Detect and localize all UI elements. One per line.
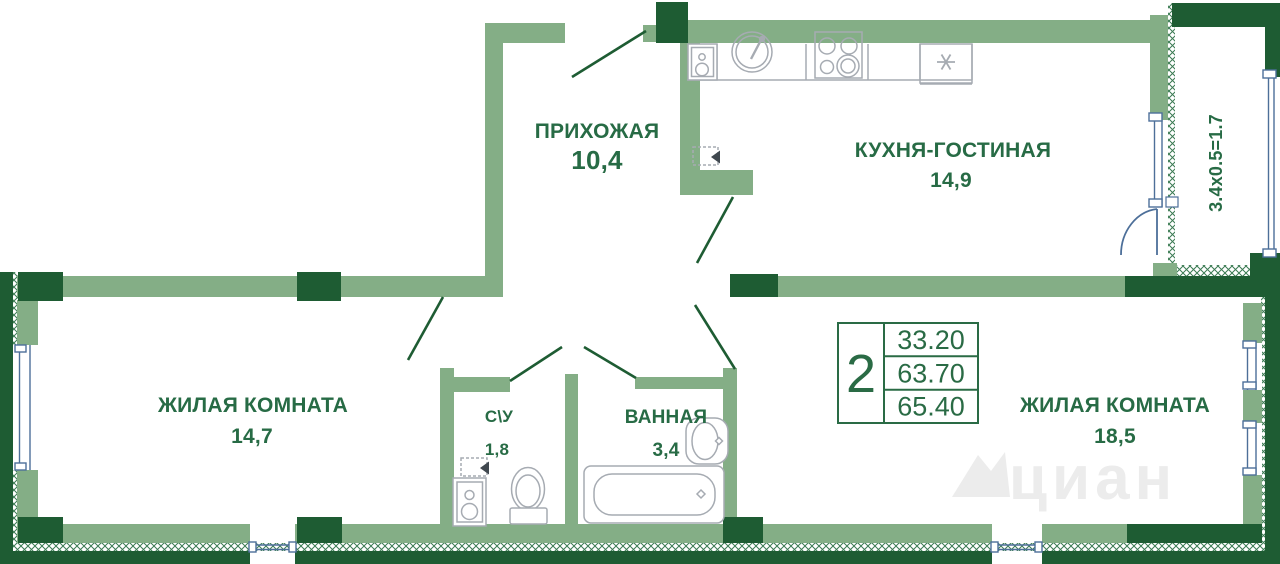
toilet-icon	[510, 468, 547, 525]
window-bottom-1	[249, 542, 296, 564]
living-area-value: 33.20	[897, 325, 965, 355]
total-area-value: 65.40	[897, 392, 965, 422]
living2-label: ЖИЛАЯ КОМНАТА	[1019, 394, 1210, 417]
living2-area: 18,5	[1094, 425, 1136, 448]
living1-label: ЖИЛАЯ КОМНАТА	[157, 394, 348, 417]
window-balcony-right	[1263, 70, 1280, 257]
wc-area: 1,8	[485, 440, 509, 459]
bathtub-icon	[584, 466, 724, 523]
window-right-1	[1243, 341, 1262, 390]
area-summary-table: 2 33.20 63.70 65.40	[838, 323, 978, 423]
living1-area: 14,7	[231, 425, 273, 448]
balcony-dimension: 3.4x0.5=1.7	[1206, 114, 1226, 212]
window-bottom-2	[991, 542, 1042, 564]
window-left-wall	[13, 345, 38, 470]
bath-label: ВАННАЯ	[625, 407, 708, 428]
floor-plan-svg: циан	[0, 0, 1280, 564]
window-balcony-partition	[1149, 113, 1168, 207]
hallway-area: 10,4	[571, 145, 623, 175]
area-without-balcony-value: 63.70	[897, 359, 965, 389]
bath-area: 3,4	[652, 440, 679, 461]
rooms-count: 2	[846, 344, 876, 404]
washing-machine-icon	[453, 478, 486, 526]
wc-label: С\У	[485, 407, 513, 426]
kitchen-label: КУХНЯ-ГОСТИНАЯ	[855, 139, 1051, 162]
balcony-door-frame	[1166, 197, 1178, 207]
window-right-2	[1243, 421, 1262, 475]
boiler-cabinet-icon	[688, 44, 717, 80]
watermark-text: циан	[1009, 444, 1177, 513]
floor-plan: циан	[0, 0, 1280, 564]
kitchen-area: 14,9	[930, 169, 972, 192]
hallway-label: ПРИХОЖАЯ	[535, 120, 660, 143]
